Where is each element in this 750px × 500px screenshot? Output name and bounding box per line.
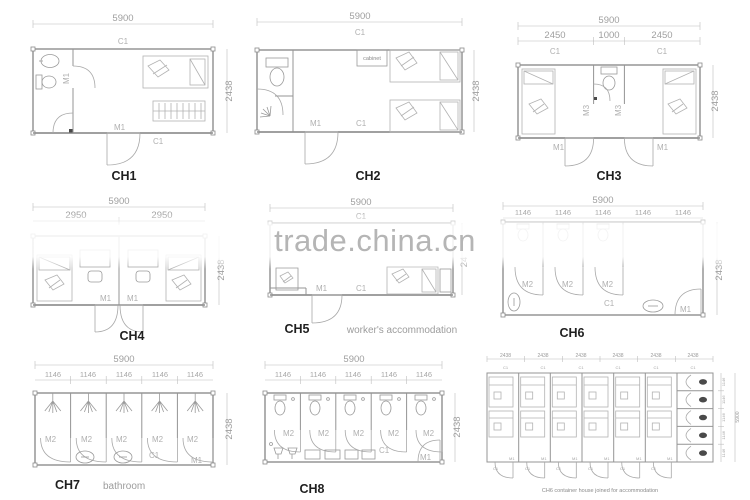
window-label: C1 (493, 466, 499, 471)
entry-door (565, 138, 594, 166)
svg-text:5900: 5900 (350, 197, 371, 208)
stall-door-label: M2 (602, 280, 614, 289)
bed-unit (489, 377, 513, 478)
svg-text:1146: 1146 (721, 412, 726, 421)
window-label: C1 (355, 28, 366, 37)
stall-door-label: M2 (116, 435, 128, 444)
floor-plan-ch8: 5900 1146 1146 1146 1146 1146 (250, 352, 485, 500)
svg-text:1146: 1146 (721, 395, 726, 404)
svg-text:1146: 1146 (310, 370, 326, 379)
toilet-symbol (266, 58, 288, 86)
svg-text:5900: 5900 (598, 15, 619, 26)
svg-text:2438: 2438 (575, 353, 586, 359)
svg-text:2438: 2438 (500, 353, 511, 359)
svg-text:1146: 1146 (416, 370, 432, 379)
svg-text:2450: 2450 (651, 30, 672, 41)
toilet-symbol (344, 395, 364, 415)
window-label: C1 (556, 466, 562, 471)
plan-title-ch7: CH7 (55, 478, 80, 492)
svg-text:1146: 1146 (275, 370, 291, 379)
shower-symbol (80, 393, 96, 413)
svg-text:2438: 2438 (452, 416, 463, 437)
svg-text:5900: 5900 (113, 354, 134, 365)
window-label: C1 (503, 365, 509, 370)
door-label: M1 (604, 456, 610, 461)
floor-plan-ch3: 5900 2450 1000 2450 C1 C1 (505, 4, 750, 186)
window-label: C1 (651, 466, 657, 471)
window-label: C1 (118, 37, 129, 46)
dimension-top: 5900 2450 1000 2450 (518, 15, 700, 45)
window-label: C1 (657, 47, 668, 56)
window-label: C1 (578, 365, 584, 370)
door-label: M1 (100, 294, 112, 303)
stall-door-label: M2 (81, 435, 93, 444)
entry-door (305, 132, 338, 164)
radiator-symbol (153, 101, 205, 121)
svg-text:2450: 2450 (544, 30, 565, 41)
window-label: C1 (690, 365, 696, 370)
svg-text:2438: 2438 (612, 353, 623, 359)
desk-symbol (276, 268, 298, 290)
svg-text:1146: 1146 (116, 370, 132, 379)
door-label: M1 (572, 456, 578, 461)
floor-plan-joined: 2438 2438 2438 2438 2438 2438 C1 C1 C1 C… (485, 352, 750, 500)
window-label: C1 (379, 446, 390, 455)
floor-plan-ch7: 5900 1146 1146 1146 1146 1146 (15, 352, 260, 500)
plan-title-ch4: CH4 (119, 329, 144, 343)
svg-text:2438: 2438 (650, 353, 661, 359)
entry-door (107, 133, 140, 165)
cabinet-label: cabinet (363, 56, 381, 62)
svg-text:5900: 5900 (108, 196, 129, 207)
door-label: M1 (420, 453, 432, 462)
dimension-right: 1146 1146 1146 1146 1146 5900 (718, 373, 741, 462)
svg-text:1146: 1146 (721, 430, 726, 439)
window-label: C1 (620, 466, 626, 471)
sink-symbol (76, 451, 94, 463)
walls (263, 391, 444, 464)
bathroom-strip (677, 375, 713, 460)
shower-symbol (594, 84, 610, 101)
dimension-top: 5900 1146 1146 1146 1146 1146 (265, 354, 442, 384)
bathroom-door (73, 66, 95, 88)
dimension-top: 2438 2438 2438 2438 2438 2438 C1 C1 C1 C… (487, 353, 713, 370)
toilet-symbol (274, 395, 294, 415)
door-label: M1 (114, 123, 126, 132)
door-label: M1 (127, 294, 139, 303)
window-label: C1 (604, 299, 615, 308)
stall-door-label: M2 (45, 435, 57, 444)
stall-door-label: M2 (152, 435, 164, 444)
svg-text:2438: 2438 (710, 90, 721, 111)
svg-text:1146: 1146 (45, 370, 61, 379)
dimension-top: 5900 (257, 11, 462, 26)
joined-caption: CH6 container house joined for accommoda… (542, 488, 658, 494)
bed-symbol (663, 69, 696, 134)
plan-title-ch2: CH2 (355, 169, 380, 183)
plan-caption-ch7: bathroom (103, 481, 145, 492)
toilet-symbol (380, 395, 400, 415)
sink-symbol (270, 443, 298, 460)
plan-title-ch8: CH8 (299, 482, 324, 496)
bed-unit (584, 377, 608, 478)
window-label: C1 (588, 466, 594, 471)
stall-door-label: M2 (423, 429, 435, 438)
shower-symbol (257, 89, 283, 117)
dimension-right: 2438 (224, 393, 235, 465)
stall-door-label: M2 (283, 429, 295, 438)
svg-text:2438: 2438 (224, 80, 235, 101)
shower-symbol (152, 393, 168, 413)
wardrobe-symbol (440, 269, 451, 292)
dimension-right: 2438 (452, 393, 463, 462)
stall-door-label: M2 (353, 429, 365, 438)
window-label: C1 (615, 365, 621, 370)
toilet-symbol (309, 395, 329, 415)
inner-door-label: M3 (614, 104, 623, 116)
sink-symbol (114, 451, 132, 463)
bed-symbol (390, 100, 460, 132)
dimension-top: 5900 (33, 13, 213, 28)
bed-symbol (390, 50, 460, 82)
floor-plan-ch1: 5900 C1 M1 (20, 4, 250, 186)
window-label: C1 (540, 365, 546, 370)
svg-text:1146: 1146 (721, 448, 726, 457)
svg-text:1146: 1146 (152, 370, 168, 379)
dimension-top: 5900 1146 1146 1146 1146 1146 (35, 354, 213, 384)
bed-unit (616, 377, 640, 478)
inner-door-label: M1 (62, 72, 71, 84)
window-label: C1 (153, 137, 164, 146)
dimension-top: 5900 (270, 197, 453, 212)
door-label: M1 (667, 456, 673, 461)
bed-symbol (522, 69, 555, 134)
window-label: C1 (550, 47, 561, 56)
bed-unit (552, 377, 576, 478)
window-label: C1 (356, 119, 367, 128)
floor-plan-ch2: 5900 C1 cabinet (250, 4, 485, 186)
door-label: M1 (657, 143, 669, 152)
stall-door-label: M2 (318, 429, 330, 438)
door-label: M1 (680, 305, 692, 314)
svg-text:5900: 5900 (735, 411, 741, 422)
dimension-right: 2438 (710, 65, 721, 138)
bed-symbol (387, 267, 438, 294)
entry-door (120, 305, 143, 332)
shower-symbol (187, 393, 203, 413)
toilet-symbol (415, 395, 435, 415)
svg-text:1146: 1146 (187, 370, 203, 379)
door-label: M1 (310, 119, 322, 128)
door-label: M1 (541, 456, 547, 461)
bed-unit (521, 377, 545, 478)
stall-door-label: M2 (388, 429, 400, 438)
shower-symbol (116, 393, 132, 413)
dimension-right: 2438 (224, 49, 235, 133)
svg-text:5900: 5900 (112, 13, 133, 24)
shower-symbol (53, 113, 73, 133)
stall-door-label: M2 (522, 280, 534, 289)
svg-text:2438: 2438 (537, 353, 548, 359)
svg-text:1146: 1146 (721, 377, 726, 386)
svg-text:1146: 1146 (80, 370, 96, 379)
svg-text:2438: 2438 (687, 353, 698, 359)
entry-door (624, 138, 653, 166)
plan-caption-ch5: worker's accommodation (346, 325, 457, 336)
watermark: trade.china.cn (0, 213, 750, 269)
svg-text:1146: 1146 (381, 370, 397, 379)
entry-door (312, 295, 342, 323)
svg-text:5900: 5900 (592, 195, 613, 206)
door-label: M1 (509, 456, 515, 461)
floor-plan-sheet: 5900 C1 M1 (0, 0, 750, 500)
plan-title-ch5: CH5 (284, 322, 309, 336)
svg-text:1000: 1000 (598, 30, 619, 41)
door-label: M1 (191, 456, 203, 465)
sink-symbol (39, 55, 59, 68)
svg-text:5900: 5900 (349, 11, 370, 22)
plan-title-ch6: CH6 (559, 326, 584, 340)
door-label: M1 (553, 143, 565, 152)
svg-text:2438: 2438 (224, 418, 235, 439)
door-label: M1 (316, 284, 328, 293)
toilet-symbol (36, 75, 56, 89)
svg-text:5900: 5900 (343, 354, 364, 365)
entry-door (95, 305, 118, 332)
sink-symbol (508, 293, 520, 311)
plan-title-ch3: CH3 (596, 169, 621, 183)
window-label: C1 (356, 284, 367, 293)
watermark-text: trade.china.cn (274, 223, 476, 259)
window-label: C1 (653, 365, 659, 370)
stall-door-label: M2 (562, 280, 574, 289)
door-label: M1 (636, 456, 642, 461)
stall-door-label: M2 (187, 435, 199, 444)
inner-door-label: M3 (582, 104, 591, 116)
sink-symbol (643, 300, 663, 312)
svg-text:1146: 1146 (345, 370, 361, 379)
dimension-right: 2438 (471, 50, 482, 132)
svg-text:2438: 2438 (471, 80, 482, 101)
window-label: C1 (149, 451, 160, 460)
window-label: C1 (525, 466, 531, 471)
shower-symbol (45, 393, 61, 413)
bed-symbol (143, 56, 208, 88)
plan-title-ch1: CH1 (111, 169, 136, 183)
bed-unit (647, 377, 671, 478)
